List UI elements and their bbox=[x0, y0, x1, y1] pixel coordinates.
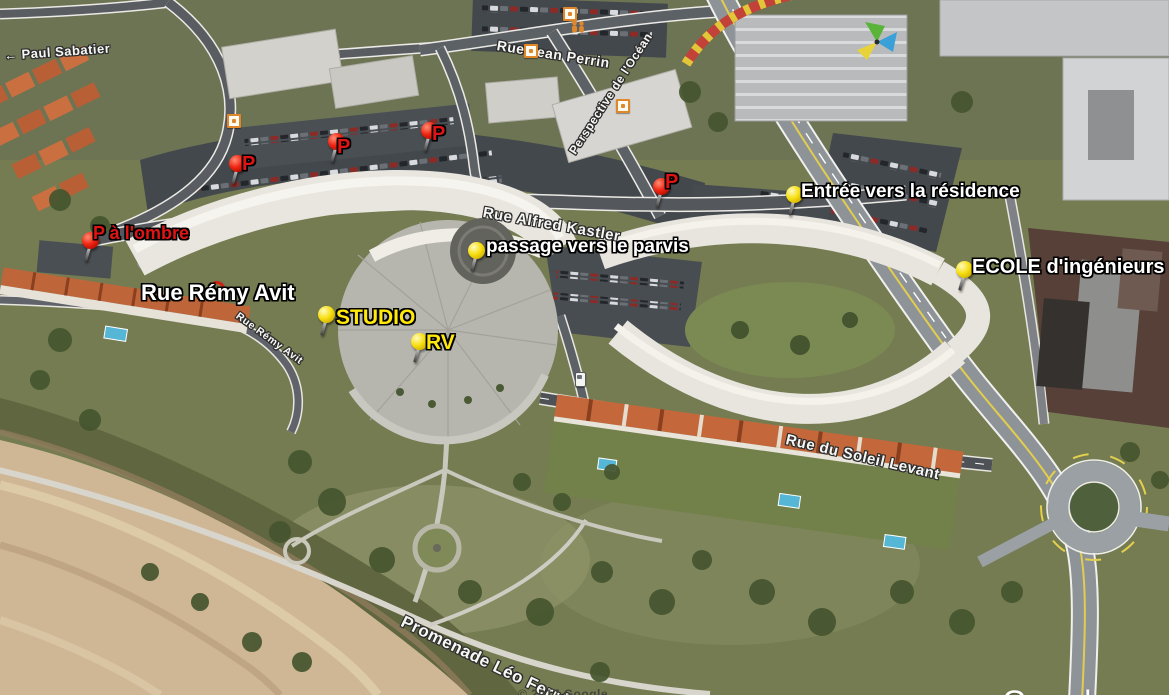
poi-dot bbox=[568, 12, 572, 16]
placemark-label-rv[interactable]: RV bbox=[426, 331, 455, 354]
photo-poi-icon[interactable] bbox=[616, 99, 630, 113]
street-label-paul-sabatier: ← Paul Sabatier bbox=[3, 41, 110, 63]
street-label-rue-remy-avit-street: Rue Rémy Avit bbox=[233, 310, 305, 367]
placemark-label-ecole-ingenieurs[interactable]: ECOLE d'ingénieurs bbox=[972, 256, 1165, 278]
people-poi-icon[interactable] bbox=[570, 20, 586, 34]
street-label-rue-du-soleil-levant: Rue du Soleil Levant bbox=[784, 431, 941, 483]
placemark-label-parking-2[interactable]: P bbox=[337, 136, 350, 158]
google-earth-watermark: Google Earth bbox=[1002, 684, 1169, 695]
placemark-label-parking-3[interactable]: P bbox=[432, 123, 445, 145]
placemark-label-rue-remy-avit-placemark[interactable]: Rue Rémy Avit bbox=[141, 281, 295, 305]
photo-poi-icon[interactable] bbox=[563, 7, 577, 21]
placemark-label-passage-parvis[interactable]: passage vers le parvis bbox=[486, 237, 689, 258]
placemark-label-parking-1[interactable]: P bbox=[242, 153, 255, 175]
pushpin-head bbox=[318, 306, 335, 323]
pushpin-passage-parvis[interactable] bbox=[463, 242, 487, 273]
placemark-label-parking-4[interactable]: P bbox=[665, 171, 678, 193]
pushpin-head bbox=[956, 261, 973, 278]
map-viewport[interactable]: PPPPP à l'ombrepassage vers le parvisSTU… bbox=[0, 0, 1169, 695]
photo-poi-icon[interactable] bbox=[227, 114, 241, 128]
placemark-label-entree-residence[interactable]: Entrée vers la résidence bbox=[801, 182, 1020, 203]
annotations-layer: PPPPP à l'ombrepassage vers le parvisSTU… bbox=[0, 0, 1169, 695]
copyright-text: © 2017 Google bbox=[518, 687, 608, 695]
pushpin-studio[interactable] bbox=[313, 306, 337, 337]
transit-stop-icon[interactable] bbox=[575, 372, 586, 387]
pushpin-head bbox=[468, 242, 485, 259]
poi-dot bbox=[529, 49, 533, 53]
placemark-label-parking-ombre[interactable]: P à l'ombre bbox=[93, 224, 189, 244]
street-label-rue-jean-perrin: Rue Jean Perrin bbox=[496, 37, 611, 71]
poi-dot bbox=[232, 119, 236, 123]
photo-poi-icon[interactable] bbox=[524, 44, 538, 58]
street-label-promenade-leo-ferre: Promenade Léo Ferré bbox=[398, 612, 572, 695]
placemark-label-studio[interactable]: STUDIO bbox=[336, 306, 415, 329]
poi-dot bbox=[621, 104, 625, 108]
